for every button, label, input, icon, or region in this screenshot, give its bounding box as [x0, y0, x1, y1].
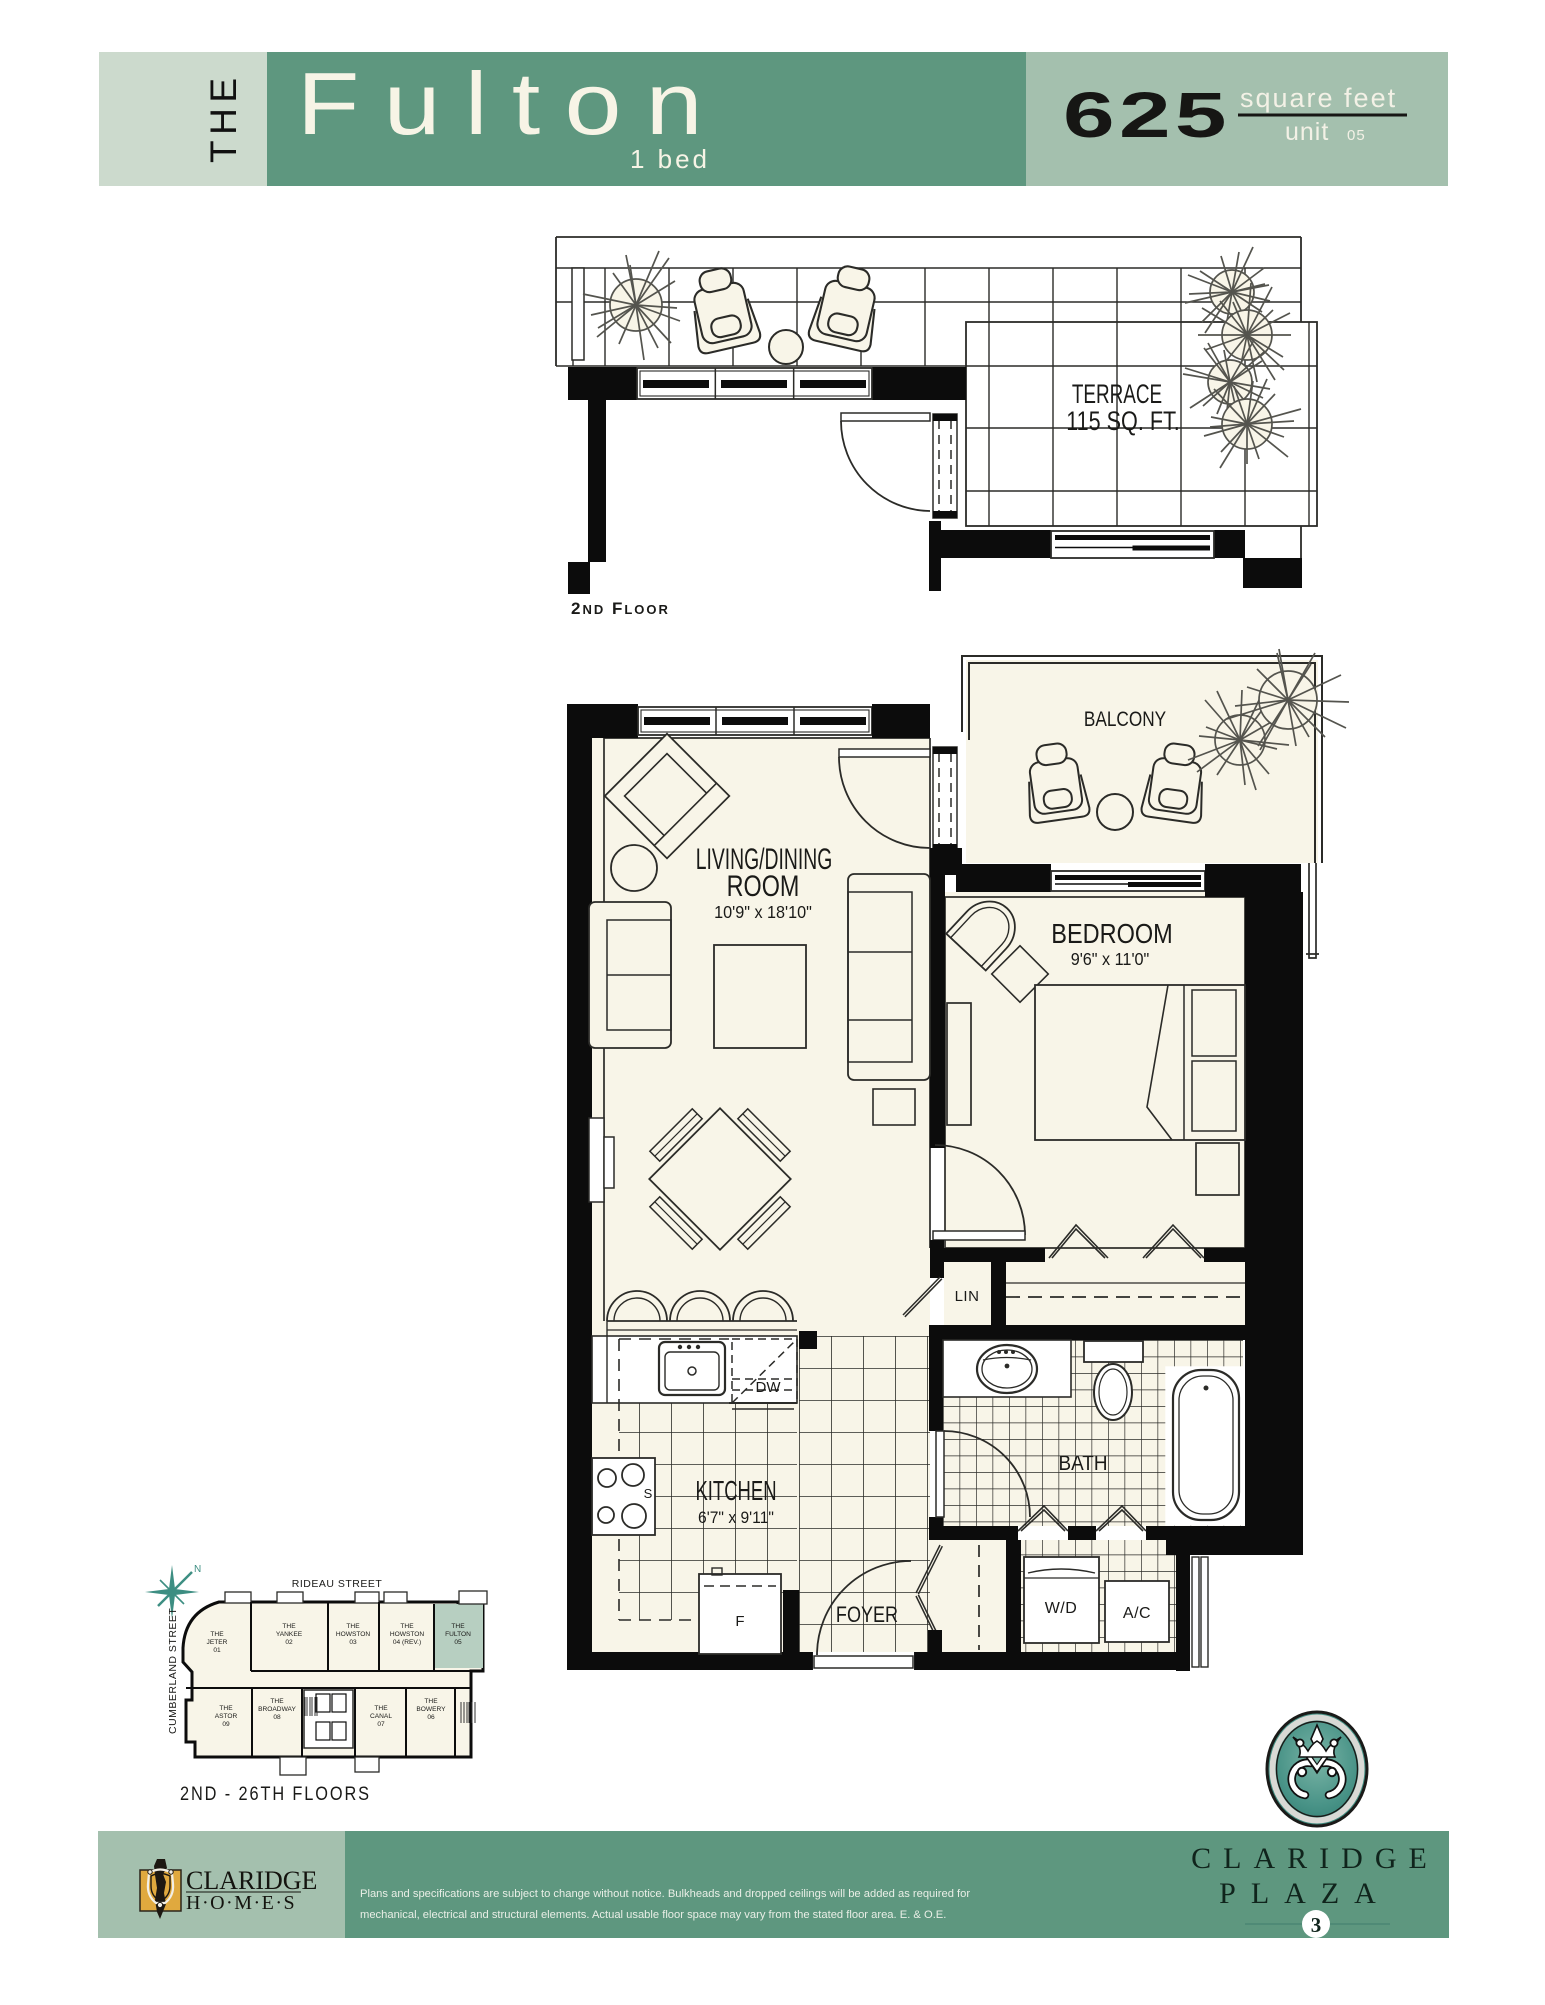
svg-text:2ND - 26TH FLOORS: 2ND - 26TH FLOORS	[180, 1783, 371, 1804]
svg-text:2ND FLOOR: 2ND FLOOR	[571, 599, 670, 618]
svg-text:THE: THE	[400, 1623, 414, 1630]
svg-text:A/C: A/C	[1123, 1605, 1151, 1622]
svg-text:Fulton: Fulton	[297, 56, 727, 154]
svg-text:1 bed: 1 bed	[630, 144, 710, 174]
svg-text:10'9" x 18'10": 10'9" x 18'10"	[714, 902, 812, 922]
svg-text:LIN: LIN	[955, 1288, 980, 1305]
svg-text:CLARIDGE: CLARIDGE	[1191, 1842, 1439, 1875]
svg-text:HOWSTON: HOWSTON	[336, 1631, 371, 1638]
svg-text:ASTOR: ASTOR	[215, 1713, 238, 1720]
svg-text:THE: THE	[270, 1698, 284, 1705]
svg-text:04 (REV.): 04 (REV.)	[393, 1639, 421, 1646]
svg-text:06: 06	[427, 1714, 435, 1721]
svg-text:square feet: square feet	[1240, 83, 1397, 113]
svg-text:N: N	[194, 1564, 201, 1575]
svg-text:YANKEE: YANKEE	[276, 1631, 303, 1638]
svg-text:RIDEAU STREET: RIDEAU STREET	[292, 1578, 383, 1590]
svg-text:05: 05	[454, 1639, 462, 1646]
svg-text:FOYER: FOYER	[836, 1603, 898, 1627]
svg-text:CLARIDGE: CLARIDGE	[186, 1866, 317, 1895]
svg-text:TERRACE: TERRACE	[1072, 379, 1162, 409]
svg-text:BROADWAY: BROADWAY	[258, 1706, 296, 1713]
svg-text:FULTON: FULTON	[445, 1631, 471, 1638]
svg-text:625: 625	[1063, 79, 1231, 150]
svg-text:BATH: BATH	[1059, 1452, 1108, 1475]
svg-text:6'7" x 9'11": 6'7" x 9'11"	[698, 1508, 774, 1527]
svg-text:BALCONY: BALCONY	[1084, 709, 1166, 732]
svg-text:09: 09	[222, 1721, 230, 1728]
svg-text:115 SQ. FT.: 115 SQ. FT.	[1066, 407, 1180, 437]
svg-text:S: S	[644, 1486, 653, 1501]
svg-text:H·O·M·E·S: H·O·M·E·S	[186, 1892, 296, 1914]
svg-text:05: 05	[1347, 127, 1366, 144]
svg-text:KITCHEN: KITCHEN	[695, 1476, 776, 1507]
svg-text:Plans and specifications are s: Plans and specifications are subject to …	[360, 1888, 970, 1900]
svg-text:mechanical, electrical and str: mechanical, electrical and structural el…	[360, 1909, 946, 1921]
svg-text:BEDROOM: BEDROOM	[1051, 919, 1172, 949]
svg-text:BOWERY: BOWERY	[416, 1706, 446, 1713]
svg-text:THE: THE	[282, 1623, 296, 1630]
svg-text:THE: THE	[451, 1623, 465, 1630]
svg-text:THE: THE	[210, 1631, 224, 1638]
svg-text:CUMBERLAND STREET: CUMBERLAND STREET	[167, 1608, 179, 1734]
svg-text:PLAZA: PLAZA	[1219, 1877, 1391, 1910]
svg-text:03: 03	[349, 1639, 357, 1646]
svg-text:HOWSTON: HOWSTON	[390, 1631, 425, 1638]
svg-text:THE: THE	[346, 1623, 360, 1630]
svg-text:F: F	[735, 1613, 744, 1630]
svg-text:DW: DW	[756, 1379, 782, 1396]
svg-text:9'6" x 11'0": 9'6" x 11'0"	[1071, 949, 1150, 969]
svg-text:THE: THE	[424, 1698, 438, 1705]
svg-text:02: 02	[285, 1639, 293, 1646]
svg-text:W/D: W/D	[1045, 1600, 1078, 1617]
svg-text:01: 01	[213, 1647, 221, 1654]
svg-text:ROOM: ROOM	[727, 869, 800, 902]
svg-text:CANAL: CANAL	[370, 1713, 392, 1720]
svg-text:unit: unit	[1285, 118, 1329, 146]
svg-text:THE: THE	[219, 1705, 233, 1712]
svg-text:THE: THE	[203, 73, 244, 164]
svg-text:07: 07	[377, 1721, 385, 1728]
svg-text:3: 3	[1311, 1913, 1322, 1937]
svg-text:08: 08	[273, 1714, 281, 1721]
svg-text:THE: THE	[374, 1705, 388, 1712]
svg-text:JETER: JETER	[207, 1639, 228, 1646]
